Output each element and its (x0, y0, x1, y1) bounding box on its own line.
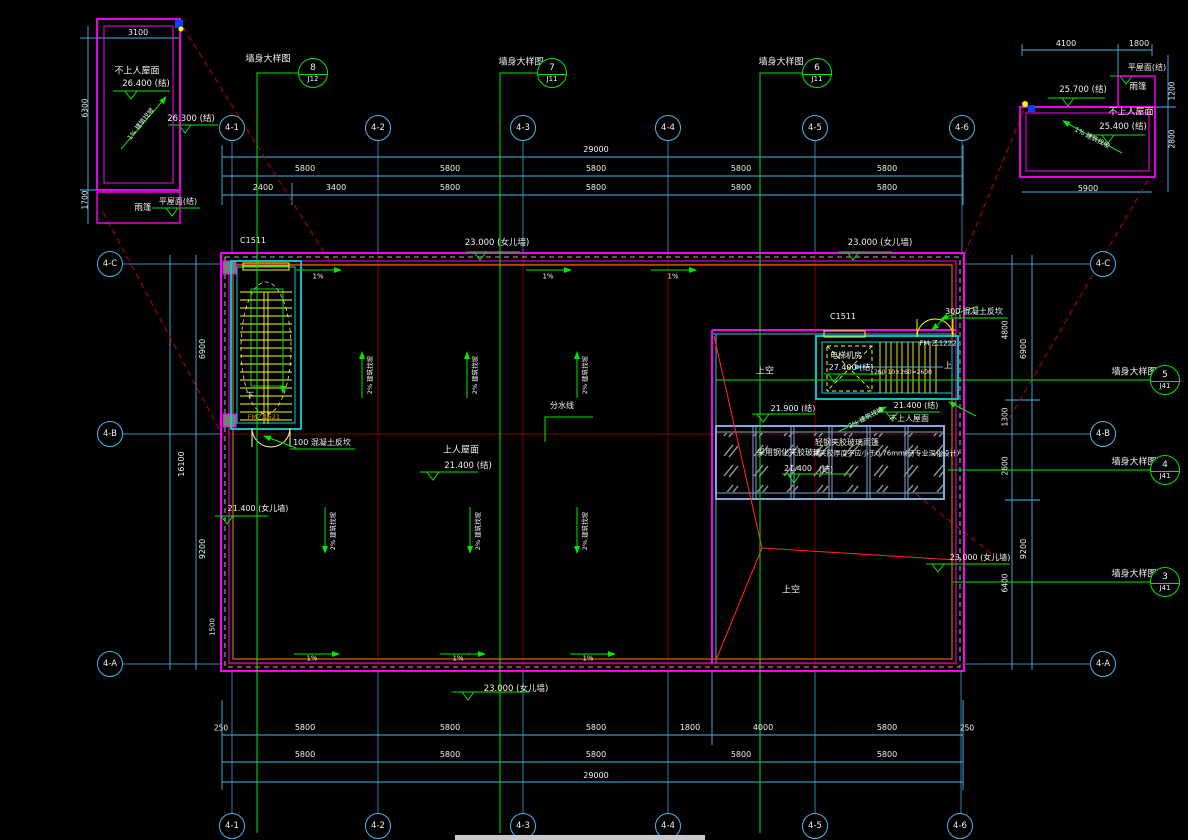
dim-text: 16100 (178, 451, 186, 476)
level-text: 26.300 (结) (167, 115, 215, 124)
level-text: 23.000 (女儿墙) (484, 685, 549, 694)
dim-text: 5800 (440, 165, 460, 173)
dim-text: 6400 (1001, 573, 1009, 592)
stair-dim: 260 10×260=2600 (874, 370, 932, 376)
note: 轻钢夹胶玻璃雨篷 (815, 439, 879, 447)
roof-label: 不上人屋面 (1108, 109, 1153, 118)
grid-bubble-4-3: 4-3 (510, 115, 536, 141)
dim-text: 5800 (731, 184, 751, 192)
dim-text: 2800 (1168, 129, 1176, 148)
dim-text: 4000 (753, 724, 773, 732)
note: 300 混凝土反坎 (945, 308, 1003, 316)
dim-text: 2400 (253, 184, 273, 192)
dim-text: 1800 (680, 724, 700, 732)
dim-text: 9200 (199, 539, 207, 559)
level-text: 21.400 (结) (894, 402, 939, 410)
grid-bubble-4-B: 4-B (1090, 421, 1116, 447)
dim-text: 1500 (210, 618, 217, 636)
dim-text: 4800 (1001, 320, 1009, 339)
level-text: 23.000 (女儿墙) (465, 239, 530, 248)
slope-label: 1% (452, 656, 463, 663)
level-text: 21.900 (结) (771, 405, 816, 413)
wall-detail-marker-8: 8J12 (298, 58, 328, 88)
detail-sheet: J11 (538, 74, 566, 83)
dim-text: 29000 (583, 146, 608, 154)
dim-text: 5800 (440, 724, 460, 732)
grid-bubble-4-6: 4-6 (947, 813, 973, 839)
level-text: 23.000 (女儿墙) (848, 239, 913, 248)
grid-bubble-4-A: 4-A (1090, 651, 1116, 677)
level-text: 21.400 (结) (444, 462, 492, 471)
level-text: 21.400 (女儿墙) (228, 505, 289, 513)
dim-text: 5800 (295, 724, 315, 732)
grid-bubble-4-B: 4-B (97, 421, 123, 447)
slope-label: 2% 建筑找坡 (330, 512, 337, 550)
note: 100 混凝土反坎 (293, 439, 351, 447)
slope-label: 1% (306, 656, 317, 663)
slope-label: 2% 建筑找坡 (848, 406, 885, 430)
grid-bubble-4-2: 4-2 (365, 813, 391, 839)
detail-sheet: J41 (1151, 583, 1179, 592)
detail-number: 7 (549, 64, 555, 74)
dim-text: 3100 (128, 29, 148, 37)
grid-bubble-4-2: 4-2 (365, 115, 391, 141)
roof-label: 不上人屋面 (114, 68, 159, 77)
detail-number: 8 (310, 64, 316, 74)
slope-label: 1% (542, 274, 553, 281)
dim-text: 250 (960, 724, 974, 732)
dim-text: 29000 (583, 772, 608, 780)
detail-number: 3 (1162, 573, 1168, 583)
dim-text: 6900 (1020, 339, 1028, 359)
grid-bubble-4-4: 4-4 (655, 115, 681, 141)
void-label: 上空 (756, 368, 774, 377)
roof-label: 不上人屋面 (889, 415, 929, 423)
annotation-layer: 3100不上人屋面26.400 (结)1% 建筑找坡26.300 (结)平屋面(… (0, 0, 1188, 840)
dim-text: 1700 (81, 190, 89, 209)
cad-roof-plan-drawing: 3100不上人屋面26.400 (结)1% 建筑找坡26.300 (结)平屋面(… (0, 0, 1188, 840)
grid-bubble-4-1: 4-1 (219, 115, 245, 141)
dim-text: 6300 (81, 98, 89, 117)
dim-text: 5800 (295, 165, 315, 173)
grid-bubble-4-1: 4-1 (219, 813, 245, 839)
door-tag: FM乙1521 (248, 414, 280, 421)
grid-bubble-4-C: 4-C (97, 251, 123, 277)
slope-label: 2% 建筑找坡 (367, 356, 374, 394)
slope-label: 2% 建筑找坡 (475, 512, 482, 550)
window-tag: C1511 (240, 237, 266, 245)
wall-detail-marker-3: 3J41 (1150, 567, 1180, 597)
dim-text: 3400 (326, 184, 346, 192)
dim-text: 5800 (440, 184, 460, 192)
detail-sheet: J41 (1151, 471, 1179, 480)
grid-bubble-4-A: 4-A (97, 651, 123, 677)
slope-label: 2% 建筑找坡 (582, 512, 589, 550)
window-tag: C1511 (830, 313, 856, 321)
dim-text: 6900 (199, 339, 207, 359)
grid-bubble-4-C: 4-C (1090, 251, 1116, 277)
note: 共夹胶厚度不应小于0.76mm(待专业深化设计) (813, 451, 960, 458)
grid-bubble-4-6: 4-6 (949, 115, 975, 141)
detail-number: 4 (1162, 461, 1168, 471)
dim-text: 1300 (1001, 407, 1009, 426)
dim-text: 5800 (586, 751, 606, 759)
dim-text: 5800 (586, 724, 606, 732)
roof-label: 平屋面(结) (1128, 64, 1166, 72)
roof-label: 平屋面(结) (159, 198, 197, 206)
detail-number: 5 (1162, 371, 1168, 381)
dim-text: 5800 (877, 751, 897, 759)
slope-label: 2% 建筑找坡 (582, 356, 589, 394)
level-text: 25.700 (结) (1059, 86, 1107, 95)
detail-label: 墙身大样图 (758, 59, 803, 68)
slope-label: 1% (312, 274, 323, 281)
dim-text: 5800 (877, 165, 897, 173)
roof-label: 上人屋面 (443, 447, 479, 456)
void-label: 上空 (782, 587, 800, 596)
dim-text: 1200 (1168, 81, 1176, 100)
canopy-label: 雨篷 (134, 204, 151, 213)
detail-sheet: J12 (299, 74, 327, 83)
dim-text: 5800 (877, 724, 897, 732)
wall-detail-marker-4: 4J41 (1150, 455, 1180, 485)
taskbar-fragment[interactable] (455, 835, 705, 840)
dim-text: 5800 (295, 751, 315, 759)
dim-text: 2600 (1001, 456, 1009, 475)
detail-label: 墙身大样图 (498, 59, 543, 68)
room-label: 电梯机房 (830, 352, 862, 360)
dim-text: 5800 (731, 165, 751, 173)
dim-text: 5800 (731, 751, 751, 759)
dim-text: 5800 (440, 751, 460, 759)
note: 采用钢化夹胶玻璃 (757, 449, 821, 457)
dim-text: 5800 (877, 184, 897, 192)
detail-number: 6 (814, 64, 820, 74)
canopy-label: 雨篷 (1129, 83, 1146, 92)
detail-label: 墙身大样图 (245, 56, 290, 65)
note: 分水线 (550, 402, 574, 410)
level-text: 25.400 (结) (1099, 123, 1147, 132)
dim-text: 1800 (1129, 40, 1149, 48)
level-text: 23.000 (女儿墙) (950, 554, 1011, 562)
level-text: 26.400 (结) (122, 80, 170, 89)
door-tag: FM 乙1222 (919, 341, 956, 348)
dim-text: 5800 (586, 184, 606, 192)
dim-text: 4100 (1056, 40, 1076, 48)
slope-label: 1% 建筑找坡 (127, 107, 156, 141)
dim-text: 9200 (1020, 539, 1028, 559)
slope-label: 1% (582, 656, 593, 663)
slope-label: 1% (667, 274, 678, 281)
grid-bubble-4-5: 4-5 (802, 813, 828, 839)
dim-text: 250 (214, 724, 228, 732)
grid-bubble-4-5: 4-5 (802, 115, 828, 141)
wall-detail-marker-7: 7J11 (537, 58, 567, 88)
level-text: 27.400 (结) (829, 364, 874, 372)
detail-sheet: J41 (1151, 381, 1179, 390)
dim-text: 5800 (586, 165, 606, 173)
slope-label: 2% 建筑找坡 (472, 356, 479, 394)
level-text: (结) (819, 466, 833, 474)
wall-detail-marker-5: 5J41 (1150, 365, 1180, 395)
detail-sheet: J11 (803, 74, 831, 83)
stair-label: 上 (944, 362, 952, 370)
dim-text: 5900 (1078, 185, 1098, 193)
level-text: 21.400 (784, 465, 812, 473)
wall-detail-marker-6: 6J11 (802, 58, 832, 88)
stair-label: 下 (246, 392, 254, 400)
